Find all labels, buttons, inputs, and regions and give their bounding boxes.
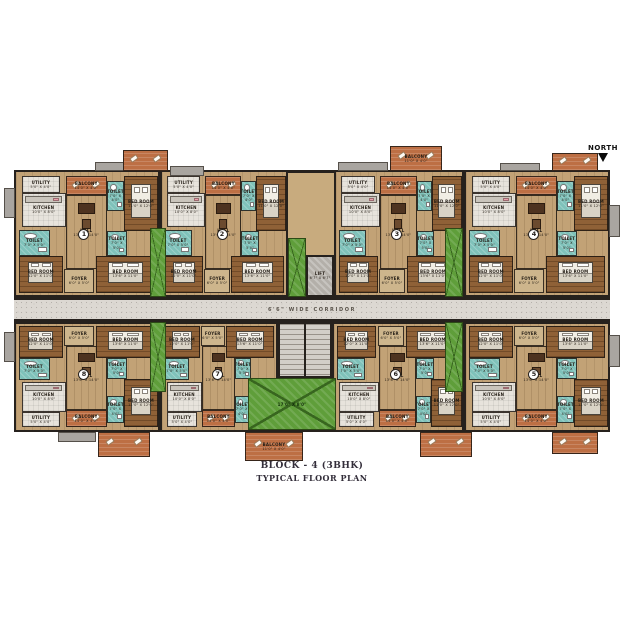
- room-label: TOILET7'0" X 5'0": [24, 364, 45, 373]
- unit-3-bed-2: BED ROOM12'0" X 11'0": [339, 256, 378, 293]
- unit-3-toilet-1: TOILET7'0" X 4'0": [417, 181, 432, 212]
- room-name-text: UTILITY: [171, 415, 192, 420]
- room-label: UTILITY5'0" X 4'0": [348, 180, 369, 189]
- room-dims-text: 10'0" X 8'0": [349, 210, 372, 214]
- room-dims-text: 10'0" X 8'0": [482, 397, 505, 401]
- lounge-chair-icon: [558, 157, 567, 166]
- unit-3-foyer: FOYER6'0" X 5'0": [379, 269, 405, 292]
- ledge-block: [4, 332, 15, 362]
- room-dims-text: 7'0" X 4'0": [107, 194, 124, 203]
- room-label: BED ROOM12'0" X 11'0": [478, 269, 504, 278]
- room-dims-text: 12'0" X 11'0": [171, 274, 197, 278]
- room-dims-text: 7'0" X 5'0": [166, 369, 187, 373]
- room-label: KITCHEN10'0" X 8'0": [32, 392, 55, 401]
- room-label: FOYER6'0" X 5'0": [207, 276, 228, 285]
- room-name-text: UTILITY: [480, 415, 501, 420]
- pillow-icon: [246, 263, 256, 267]
- pillow-icon: [592, 389, 598, 394]
- room-label: KITCHEN10'0" X 8'0": [347, 392, 370, 401]
- room-label: TOILET7'0" X 5'0": [558, 236, 576, 250]
- kitchen-counter-icon: [475, 385, 512, 391]
- unit-2-utility: UTILITY5'0" X 4'0": [167, 176, 200, 193]
- unit-3-bed-1: BED ROOM11'0" X 12'0": [432, 176, 462, 231]
- room-label: BALCONY11'0" X 4'0": [404, 154, 427, 163]
- unit-1-toilet-2: TOILET7'0" X 5'0": [19, 230, 50, 256]
- pillow-icon: [577, 333, 589, 336]
- room-dims-text: 10'0" X 8'0": [347, 397, 370, 401]
- unit-8-kitchen: KITCHEN10'0" X 8'0": [22, 382, 66, 412]
- room-name-text: BED ROOM: [258, 199, 284, 204]
- room-dims-text: 7'0" X 5'0": [417, 241, 434, 250]
- room-label: TOILET7'0" X 5'0": [474, 364, 495, 373]
- pillow-icon: [265, 187, 270, 193]
- room-dims-text: 5'0" X 4'0": [30, 420, 51, 424]
- room-label: BED ROOM11'0" X 12'0": [578, 398, 604, 407]
- room-label: BED ROOM12'0" X 11'0": [28, 269, 54, 278]
- room-label: BED ROOM13'6" X 11'0": [112, 337, 138, 346]
- pillow-icon: [421, 263, 431, 267]
- ledge-block: [609, 205, 620, 237]
- room-label: BED ROOM11'0" X 12'0": [128, 199, 154, 208]
- unit-7-utility: UTILITY5'0" X 4'0": [167, 412, 198, 427]
- room-dims-text: 5'0" X 4'0": [346, 420, 367, 424]
- unit-8-bed-2: BED ROOM12'0" X 11'0": [19, 326, 63, 358]
- corridor-label: 6'6" WIDE CORRIDOR: [268, 307, 356, 313]
- room-name-text: UTILITY: [30, 180, 51, 185]
- room-dims-text: 14'0" X 4'0": [387, 186, 410, 190]
- unit-4-utility: UTILITY5'0" X 4'0": [472, 176, 510, 193]
- room-label: UTILITY5'0" X 4'0": [173, 180, 194, 189]
- room-label: KITCHEN10'0" X 8'0": [482, 392, 505, 401]
- room-dims-text: 7'0" X 5'0": [168, 243, 189, 247]
- room-label: BALCONY14'0" X 4'0": [75, 181, 98, 190]
- lounge-chair-icon: [105, 438, 114, 447]
- room-dims-text: 7'0" X 5'0": [108, 367, 126, 376]
- room-dims-text: 5'0" X 4'0": [348, 185, 369, 189]
- unit-7-bed-3: BED ROOM13'6" X 11'0": [226, 326, 274, 358]
- pillow-icon: [358, 333, 365, 336]
- ledge-block: [4, 188, 15, 218]
- unit-4-toilet-3: TOILET7'0" X 5'0": [557, 231, 577, 256]
- pillow-icon: [185, 263, 192, 267]
- kitchen-sink-icon: [191, 387, 196, 389]
- room-name-text: UTILITY: [480, 180, 501, 185]
- unit-number-3: 3: [391, 229, 402, 240]
- room-label: TOILET7'0" X 4'0": [107, 402, 124, 416]
- room-name-text: BALCONY: [207, 414, 230, 419]
- room-label: TOILET7'0" X 5'0": [166, 364, 187, 373]
- unit-6-kitchen: KITCHEN10'0" X 8'0": [339, 382, 379, 412]
- sofa-icon: [216, 203, 231, 214]
- room-label: FOYER6'0" X 5'0": [519, 276, 540, 285]
- room-dims-text: 14'0" X 4'0": [207, 419, 230, 423]
- duct-shaft: [445, 228, 463, 297]
- room-name-text: BED ROOM: [128, 199, 154, 204]
- room-dims-text: 12'0" X 11'0": [169, 342, 195, 346]
- unit-7-kitchen: KITCHEN10'0" X 8'0": [167, 382, 202, 412]
- sofa-icon: [78, 203, 95, 214]
- room-dims-text: 7'0" X 5'0": [242, 241, 259, 250]
- kitchen-counter-icon: [25, 196, 62, 202]
- unit-4-kitchen: KITCHEN10'0" X 8'0": [472, 193, 516, 227]
- unit-5-toilet-1: TOILET7'0" X 4'0": [557, 396, 574, 423]
- room-name-text: BED ROOM: [434, 199, 460, 204]
- pillow-icon: [134, 187, 140, 193]
- unit-4-toilet-2: TOILET7'0" X 5'0": [469, 230, 500, 256]
- pillow-icon: [259, 263, 269, 267]
- pillow-icon: [441, 187, 446, 193]
- outer-balcony: [552, 432, 598, 454]
- pillow-icon: [239, 333, 248, 336]
- pillow-icon: [592, 187, 598, 193]
- room-label: UTILITY5'0" X 4'0": [30, 180, 51, 189]
- room-dims-text: 7'0" X 5'0": [474, 369, 495, 373]
- room-dims-text: 10'0" X 8'0": [32, 397, 55, 401]
- kitchen-sink-icon: [369, 198, 375, 201]
- room-label: BED ROOM12'0" X 11'0": [169, 337, 195, 346]
- pillow-icon: [142, 187, 148, 193]
- unit-1-bed-1: BED ROOM11'0" X 12'0": [124, 176, 158, 231]
- pillow-icon: [134, 389, 140, 394]
- unit-1-toilet-1: TOILET7'0" X 4'0": [107, 181, 124, 212]
- central-corridor: 6'6" WIDE CORRIDOR: [14, 297, 610, 322]
- pillow-icon: [272, 187, 277, 193]
- unit-7-toilet-3: TOILET7'0" X 5'0": [235, 358, 251, 379]
- room-name-text: TOILET: [416, 362, 433, 367]
- unit-5-toilet-2: TOILET7'0" X 5'0": [469, 358, 500, 380]
- unit-8-foyer: FOYER6'0" X 5'0": [64, 326, 94, 346]
- north-arrow-icon: [598, 153, 608, 162]
- washbasin-icon: [38, 247, 47, 252]
- unit-7-toilet-2: TOILET7'0" X 5'0": [164, 358, 189, 380]
- room-label: BED ROOM12'0" X 11'0": [171, 269, 197, 278]
- washbasin-icon: [488, 247, 497, 252]
- unit-4-bed-2: BED ROOM12'0" X 11'0": [469, 256, 513, 293]
- room-dims-text: 6'7" X 6'7": [310, 276, 331, 280]
- pillow-icon: [251, 333, 260, 336]
- pillow-icon: [481, 263, 489, 267]
- pillow-icon: [562, 263, 574, 267]
- room-dims-text: 7'0" X 4'0": [416, 407, 431, 416]
- room-dims-text: 11'0" X 12'0": [578, 204, 604, 208]
- room-label: TOILET7'0" X 5'0": [24, 238, 45, 247]
- outer-balcony: [552, 153, 598, 171]
- staircase: [278, 322, 332, 378]
- kitchen-sink-icon: [53, 198, 59, 201]
- room-dims-text: 7'0" X 5'0": [474, 243, 495, 247]
- pillow-icon: [348, 333, 355, 336]
- unit-5-kitchen: KITCHEN10'0" X 8'0": [472, 382, 516, 412]
- room-dims-text: 12'0" X 11'0": [343, 342, 369, 346]
- room-label: BED ROOM13'6" X 11'0": [237, 337, 263, 346]
- plaza-label: 17'0" X 8'0": [278, 402, 307, 407]
- duct-shaft: [150, 322, 166, 392]
- room-label: TOILET7'0" X 5'0": [558, 362, 576, 376]
- unit-4-foyer: FOYER6'0" X 5'0": [514, 269, 544, 292]
- sofa-icon: [528, 353, 545, 362]
- unit-2-bed-3: BED ROOM13'6" X 11'0": [231, 256, 283, 293]
- kitchen-sink-icon: [367, 387, 373, 389]
- room-label: KITCHEN10'0" X 8'0": [175, 205, 198, 214]
- room-label: BED ROOM11'0" X 12'0": [578, 199, 604, 208]
- room-label: BED ROOM13'6" X 11'0": [244, 269, 270, 278]
- room-label: TOILET7'0" X 5'0": [342, 238, 363, 247]
- duct-shaft: [288, 238, 306, 297]
- pillow-icon: [174, 333, 180, 336]
- unit-2-balcony: BALCONY14'0" X 4'0": [205, 176, 241, 196]
- unit-5-balcony: BALCONY14'0" X 4'0": [516, 410, 557, 427]
- lounge-chair-icon: [558, 437, 567, 446]
- pillow-icon: [481, 333, 489, 336]
- room-label: FOYER6'0" X 5'0": [382, 276, 403, 285]
- unit-5-bed-1: BED ROOM11'0" X 12'0": [574, 379, 608, 427]
- plan-title-line1: BLOCK - 4 (3BHK): [162, 461, 462, 471]
- sofa-icon: [212, 353, 226, 362]
- room-label: TOILET7'0" X 5'0": [242, 236, 259, 250]
- room-label: BED ROOM13'6" X 11'0": [562, 337, 588, 346]
- room-label: BALCONY14'0" X 4'0": [207, 414, 230, 423]
- pillow-icon: [492, 333, 500, 336]
- room-label: TOILET7'0" X 5'0": [340, 364, 361, 373]
- room-dims-text: 12'0" X 11'0": [478, 342, 504, 346]
- room-label: BED ROOM13'6" X 11'0": [562, 269, 588, 278]
- room-name-text: TOILET: [108, 362, 126, 367]
- room-dims-text: 14'0" X 4'0": [212, 186, 235, 190]
- room-dims-text: 10'0" X 8'0": [482, 210, 505, 214]
- room-label: TOILET7'0" X 5'0": [416, 362, 433, 376]
- room-label: TOILET7'0" X 5'0": [108, 236, 126, 250]
- unit-3-utility: UTILITY5'0" X 4'0": [341, 176, 375, 193]
- ledge-block: [170, 166, 204, 176]
- unit-2-toilet-1: TOILET7'0" X 4'0": [241, 181, 256, 212]
- room-name-text: BALCONY: [525, 414, 548, 419]
- room-label: BED ROOM13'6" X 11'0": [420, 269, 446, 278]
- pillow-icon: [434, 333, 444, 336]
- lounge-chair-icon: [285, 439, 294, 448]
- room-dims-text: 12'0" X 11'0": [345, 274, 371, 278]
- lounge-chair-icon: [152, 154, 161, 163]
- unit-1: UTILITY5'0" X 4'0"KITCHEN10'0" X 8'0"BAL…: [14, 170, 160, 297]
- room-label: BED ROOM11'0" X 12'0": [434, 398, 460, 407]
- pillow-icon: [562, 333, 574, 336]
- room-dims-text: 12'0" X 11'0": [28, 274, 54, 278]
- unit-2-kitchen: KITCHEN10'0" X 8'0": [167, 193, 205, 227]
- room-label: BED ROOM13'6" X 11'0": [420, 337, 446, 346]
- room-dims-text: 14'0" X 4'0": [386, 419, 409, 423]
- unit-8-bed-3: BED ROOM13'6" X 11'0": [96, 326, 156, 358]
- unit-number-6: 6: [390, 369, 401, 380]
- unit-8-toilet-2: TOILET7'0" X 5'0": [19, 358, 50, 380]
- room-dims-text: 7'0" X 4'0": [417, 194, 432, 203]
- outer-balcony: [98, 432, 150, 457]
- unit-8-toilet-1: TOILET7'0" X 4'0": [107, 396, 124, 423]
- kitchen-counter-icon: [170, 196, 202, 202]
- room-name-text: 17'0" X 8'0": [278, 402, 307, 407]
- room-name-text: UTILITY: [346, 415, 367, 420]
- duct-shaft: [150, 228, 166, 297]
- unit-1-toilet-3: TOILET7'0" X 5'0": [107, 231, 127, 256]
- unit-4: UTILITY5'0" X 4'0"KITCHEN10'0" X 8'0"BAL…: [464, 170, 610, 297]
- room-label: BED ROOM13'6" X 11'0": [112, 269, 138, 278]
- pillow-icon: [31, 333, 39, 336]
- washbasin-icon: [181, 247, 189, 252]
- unit-4-toilet-1: TOILET7'0" X 4'0": [557, 181, 574, 212]
- room-dims-text: 7'0" X 5'0": [108, 241, 126, 250]
- kitchen-counter-icon: [25, 385, 62, 391]
- unit-1-kitchen: KITCHEN10'0" X 8'0": [22, 193, 66, 227]
- room-label: FOYER6'0" X 5'0": [69, 331, 90, 340]
- room-dims-text: 6'0" X 5'0": [69, 281, 90, 285]
- room-dims-text: 11'0" X 12'0": [434, 403, 460, 407]
- room-dims-text: 11'0" X 12'0": [128, 204, 154, 208]
- room-label: FOYER6'0" X 5'0": [69, 276, 90, 285]
- room-dims-text: 6'0" X 5'0": [382, 281, 403, 285]
- lift-shaft: LIFT6'7" X 6'7": [306, 255, 334, 297]
- pillow-icon: [584, 389, 590, 394]
- pillow-icon: [31, 263, 39, 267]
- unit-1-bed-2: BED ROOM12'0" X 11'0": [19, 256, 63, 293]
- unit-number-8: 8: [78, 369, 89, 380]
- unit-2: UTILITY5'0" X 4'0"KITCHEN10'0" X 8'0"BAL…: [160, 170, 288, 297]
- pillow-icon: [359, 263, 366, 267]
- ledge-block: [609, 335, 620, 367]
- lift-label: LIFT6'7" X 6'7": [310, 271, 331, 280]
- unit-2-bed-2: BED ROOM12'0" X 11'0": [164, 256, 202, 293]
- ledge-block: [500, 163, 540, 171]
- plan-title: BLOCK - 4 (3BHK) TYPICAL FLOOR PLAN: [162, 461, 462, 483]
- unit-2-toilet-3: TOILET7'0" X 5'0": [241, 231, 258, 256]
- unit-number-2: 2: [217, 229, 228, 240]
- kitchen-counter-icon: [344, 196, 377, 202]
- room-dims-text: 11'0" X 12'0": [434, 204, 460, 208]
- room-dims-text: 6'0" X 5'0": [202, 336, 223, 340]
- room-dims-text: 10'0" X 8'0": [32, 210, 55, 214]
- room-label: BALCONY14'0" X 4'0": [525, 414, 548, 423]
- unit-2-foyer: FOYER6'0" X 5'0": [204, 269, 230, 292]
- lounge-chair-icon: [582, 157, 591, 166]
- outer-balcony: [123, 150, 168, 171]
- unit-3-toilet-2: TOILET7'0" X 5'0": [339, 230, 367, 256]
- sofa-icon: [390, 353, 405, 362]
- room-label: KITCHEN10'0" X 8'0": [32, 205, 55, 214]
- outer-balcony: BALCONY11'0" X 4'0": [245, 432, 303, 461]
- kitchen-counter-icon: [170, 385, 199, 391]
- room-dims-text: 11'0" X 12'0": [258, 204, 284, 208]
- unit-6-foyer: FOYER6'0" X 5'0": [378, 326, 405, 346]
- unit-2-bed-1: BED ROOM11'0" X 12'0": [256, 176, 286, 231]
- room-label: TOILET7'0" X 4'0": [107, 189, 124, 203]
- pillow-icon: [112, 263, 124, 267]
- pillow-icon: [435, 263, 445, 267]
- room-dims-text: 14'0" X 4'0": [75, 419, 98, 423]
- room-label: KITCHEN10'0" X 8'0": [173, 392, 196, 401]
- unit-1-bed-3: BED ROOM13'6" X 11'0": [96, 256, 156, 293]
- room-name-text: UTILITY: [348, 180, 369, 185]
- room-dims-text: 13'6" X 11'0": [112, 274, 138, 278]
- room-dims-text: 6'0" X 5'0": [381, 336, 402, 340]
- room-dims-text: 11'0" X 12'0": [128, 403, 154, 407]
- unit-1-balcony: BALCONY14'0" X 4'0": [66, 176, 107, 196]
- room-label: TOILET7'0" X 4'0": [557, 402, 574, 416]
- room-dims-text: 5'0" X 4'0": [480, 185, 501, 189]
- room-label: UTILITY5'0" X 4'0": [346, 415, 367, 424]
- room-dims-text: 12'0" X 11'0": [478, 274, 504, 278]
- room-dims-text: 6'0" X 5'0": [519, 336, 540, 340]
- room-name-text: TOILET: [235, 362, 251, 367]
- room-dims-text: 5'0" X 4'0": [480, 420, 501, 424]
- kitchen-counter-icon: [475, 196, 512, 202]
- room-label: BALCONY14'0" X 4'0": [75, 414, 98, 423]
- room-label: BALCONY14'0" X 4'0": [387, 181, 410, 190]
- unit-8-balcony: BALCONY14'0" X 4'0": [66, 410, 107, 427]
- room-label: BED ROOM12'0" X 11'0": [345, 269, 371, 278]
- lounge-chair-icon: [133, 438, 142, 447]
- room-label: KITCHEN10'0" X 8'0": [482, 205, 505, 214]
- room-dims-text: 7'0" X 5'0": [342, 243, 363, 247]
- room-label: TOILET7'0" X 5'0": [417, 236, 434, 250]
- unit-7-toilet-1: TOILET7'0" X 4'0": [235, 396, 249, 423]
- room-label: UTILITY5'0" X 4'0": [171, 415, 192, 424]
- stair-flight: [306, 324, 330, 376]
- lounge-chair-icon: [582, 437, 591, 446]
- lounge-chair-icon: [253, 439, 262, 448]
- plan-title-line2: TYPICAL FLOOR PLAN: [162, 473, 462, 483]
- unit-6-balcony: BALCONY14'0" X 4'0": [379, 410, 416, 427]
- unit-8-utility: UTILITY5'0" X 4'0": [22, 412, 60, 427]
- unit-3-kitchen: KITCHEN10'0" X 8'0": [341, 193, 380, 227]
- room-dims-text: 6'0" X 5'0": [207, 281, 228, 285]
- room-label: KITCHEN10'0" X 8'0": [349, 205, 372, 214]
- lounge-chair-icon: [427, 438, 436, 447]
- room-dims-text: 13'6" X 11'0": [420, 274, 446, 278]
- room-label: TOILET7'0" X 5'0": [108, 362, 126, 376]
- unit-7-balcony: BALCONY14'0" X 4'0": [202, 410, 235, 427]
- room-label: TOILET7'0" X 4'0": [417, 189, 432, 203]
- pillow-icon: [42, 263, 50, 267]
- unit-6-toilet-3: TOILET7'0" X 5'0": [416, 358, 434, 379]
- room-dims-text: 6'0" X 5'0": [519, 281, 540, 285]
- unit-3-toilet-3: TOILET7'0" X 5'0": [417, 231, 435, 256]
- sofa-icon: [391, 203, 406, 214]
- room-dims-text: 7'0" X 5'0": [24, 243, 45, 247]
- room-label: TOILET7'0" X 5'0": [168, 238, 189, 247]
- room-label: TOILET7'0" X 4'0": [235, 402, 249, 416]
- room-dims-text: 7'0" X 4'0": [557, 407, 574, 416]
- unit-3-balcony: BALCONY14'0" X 4'0": [380, 176, 417, 196]
- room-dims-text: 7'0" X 4'0": [107, 407, 124, 416]
- room-dims-text: 6'0" X 5'0": [69, 336, 90, 340]
- room-dims-text: 13'6" X 11'0": [420, 342, 446, 346]
- unit-1-utility: UTILITY5'0" X 4'0": [22, 176, 60, 193]
- room-label: BALCONY14'0" X 4'0": [212, 181, 235, 190]
- unit-6-utility: UTILITY5'0" X 4'0": [339, 412, 374, 427]
- pillow-icon: [127, 263, 139, 267]
- unit-5: UTILITY5'0" X 4'0"KITCHEN10'0" X 8'0"BAL…: [464, 322, 610, 432]
- room-dims-text: 5'0" X 4'0": [171, 420, 192, 424]
- room-label: BED ROOM12'0" X 11'0": [478, 337, 504, 346]
- unit-number-7: 7: [212, 369, 223, 380]
- pillow-icon: [492, 263, 500, 267]
- room-label: FOYER6'0" X 5'0": [381, 331, 402, 340]
- room-label: BED ROOM12'0" X 11'0": [343, 337, 369, 346]
- pillow-icon: [127, 333, 139, 336]
- room-dims-text: 7'0" X 5'0": [24, 369, 45, 373]
- room-label: UTILITY5'0" X 4'0": [480, 180, 501, 189]
- kitchen-sink-icon: [503, 387, 509, 389]
- room-dims-text: 11'0" X 4'0": [404, 159, 427, 163]
- room-label: BED ROOM11'0" X 12'0": [128, 398, 154, 407]
- room-dims-text: 7'0" X 5'0": [558, 367, 576, 376]
